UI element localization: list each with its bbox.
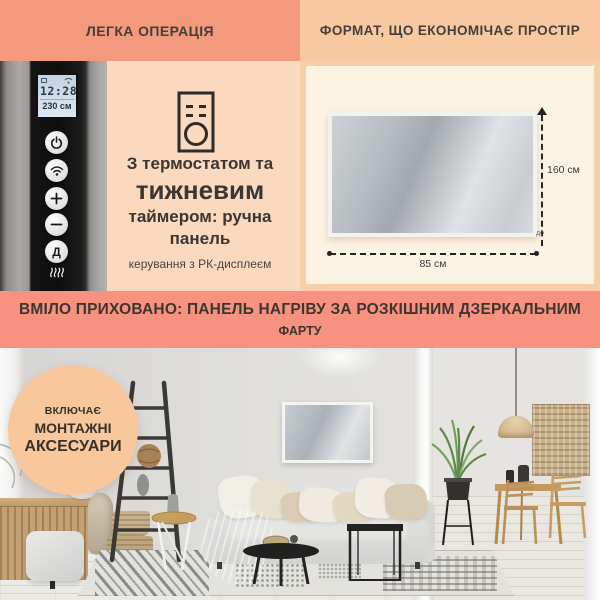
height-dimension-label: 160 см (547, 164, 580, 176)
plus-icon (50, 192, 63, 205)
width-dimension-label: 85 см (330, 258, 536, 270)
badge-line1: ВКЛЮЧАЄ (45, 405, 102, 417)
easy-operation-section: 12:28 230 см (0, 61, 300, 291)
side-table (152, 494, 196, 570)
space-saving-section: 160 см до 85 см (300, 61, 600, 291)
lcd-wifi-icon (64, 77, 73, 84)
width-dimension-line (330, 253, 536, 255)
easy-operation-text: З термостатом та тижневим таймером: ручн… (104, 153, 296, 272)
dimension-arrow-icon (537, 107, 547, 115)
thermostat-text-line2: тижневим (104, 175, 296, 206)
day-button: Д (45, 240, 68, 263)
hidden-panel-banner: ВМІЛО ПРИХОВАНО: ПАНЕЛЬ НАГРІВУ ЗА РОЗКІ… (0, 291, 600, 348)
badge-line3: АКСЕСУАРИ (24, 438, 121, 456)
height-dimension-line (541, 115, 543, 246)
lcd-calendar-icon (41, 78, 47, 83)
mirror-panel-product (328, 112, 537, 237)
lcd-display: 12:28 230 см (36, 73, 78, 119)
thermostat-text-line3: таймером: ручна панель (104, 206, 296, 250)
day-button-label: Д (52, 246, 61, 258)
wifi-icon (50, 165, 64, 176)
living-room-photo: ВКЛЮЧАЄ МОНТАЖНІ АКСЕСУАРИ (0, 348, 600, 600)
woven-ball-decor (137, 444, 161, 468)
product-infographic: ЛЕГКА ОПЕРАЦІЯ ФОРМАТ, ЩО ЕКОНОМІЧАЄ ПРО… (0, 0, 600, 600)
banner-line2: ФАРТУ (279, 324, 322, 338)
metal-side-table (347, 524, 403, 581)
dimension-endpoint-dot (534, 251, 539, 256)
header-easy-operation: ЛЕГКА ОПЕРАЦІЯ (0, 0, 300, 61)
heating-element-icon (49, 267, 65, 278)
wifi-button (45, 159, 68, 182)
control-panel-photo: 12:28 230 см (0, 61, 107, 291)
remote-control-icon (177, 91, 215, 153)
accessories-badge: ВКЛЮЧАЄ МОНТАЖНІ АКСЕСУАРИ (8, 365, 138, 495)
gray-vase (137, 474, 149, 496)
minus-icon (50, 218, 63, 231)
dining-set (495, 465, 586, 544)
badge-line2: МОНТАЖНІ (34, 420, 111, 436)
minus-button (45, 213, 68, 236)
lcd-reading: 230 см (40, 99, 74, 111)
plus-button (45, 187, 68, 210)
lcd-status-icons (40, 77, 74, 84)
dimension-endpoint-dot (327, 251, 332, 256)
power-button (45, 131, 68, 154)
banner-line1: ВМІЛО ПРИХОВАНО: ПАНЕЛЬ НАГРІВУ ЗА РОЗКІ… (19, 301, 581, 319)
header-space-saving-label: ФОРМАТ, ЩО ЕКОНОМІЧАЄ ПРОСТІР (320, 23, 580, 38)
upto-label: до (536, 230, 544, 237)
thermostat-text-line4: керування з РК-дисплеєм (104, 257, 296, 272)
potted-plant (432, 420, 486, 545)
coffee-table (243, 535, 319, 586)
power-icon (50, 136, 63, 149)
header-easy-operation-label: ЛЕГКА ОПЕРАЦІЯ (86, 23, 214, 39)
lcd-time: 12:28 (40, 84, 74, 98)
thermostat-text-line1: З термостатом та (104, 153, 296, 175)
header-space-saving: ФОРМАТ, ЩО ЕКОНОМІЧАЄ ПРОСТІР (300, 0, 600, 61)
